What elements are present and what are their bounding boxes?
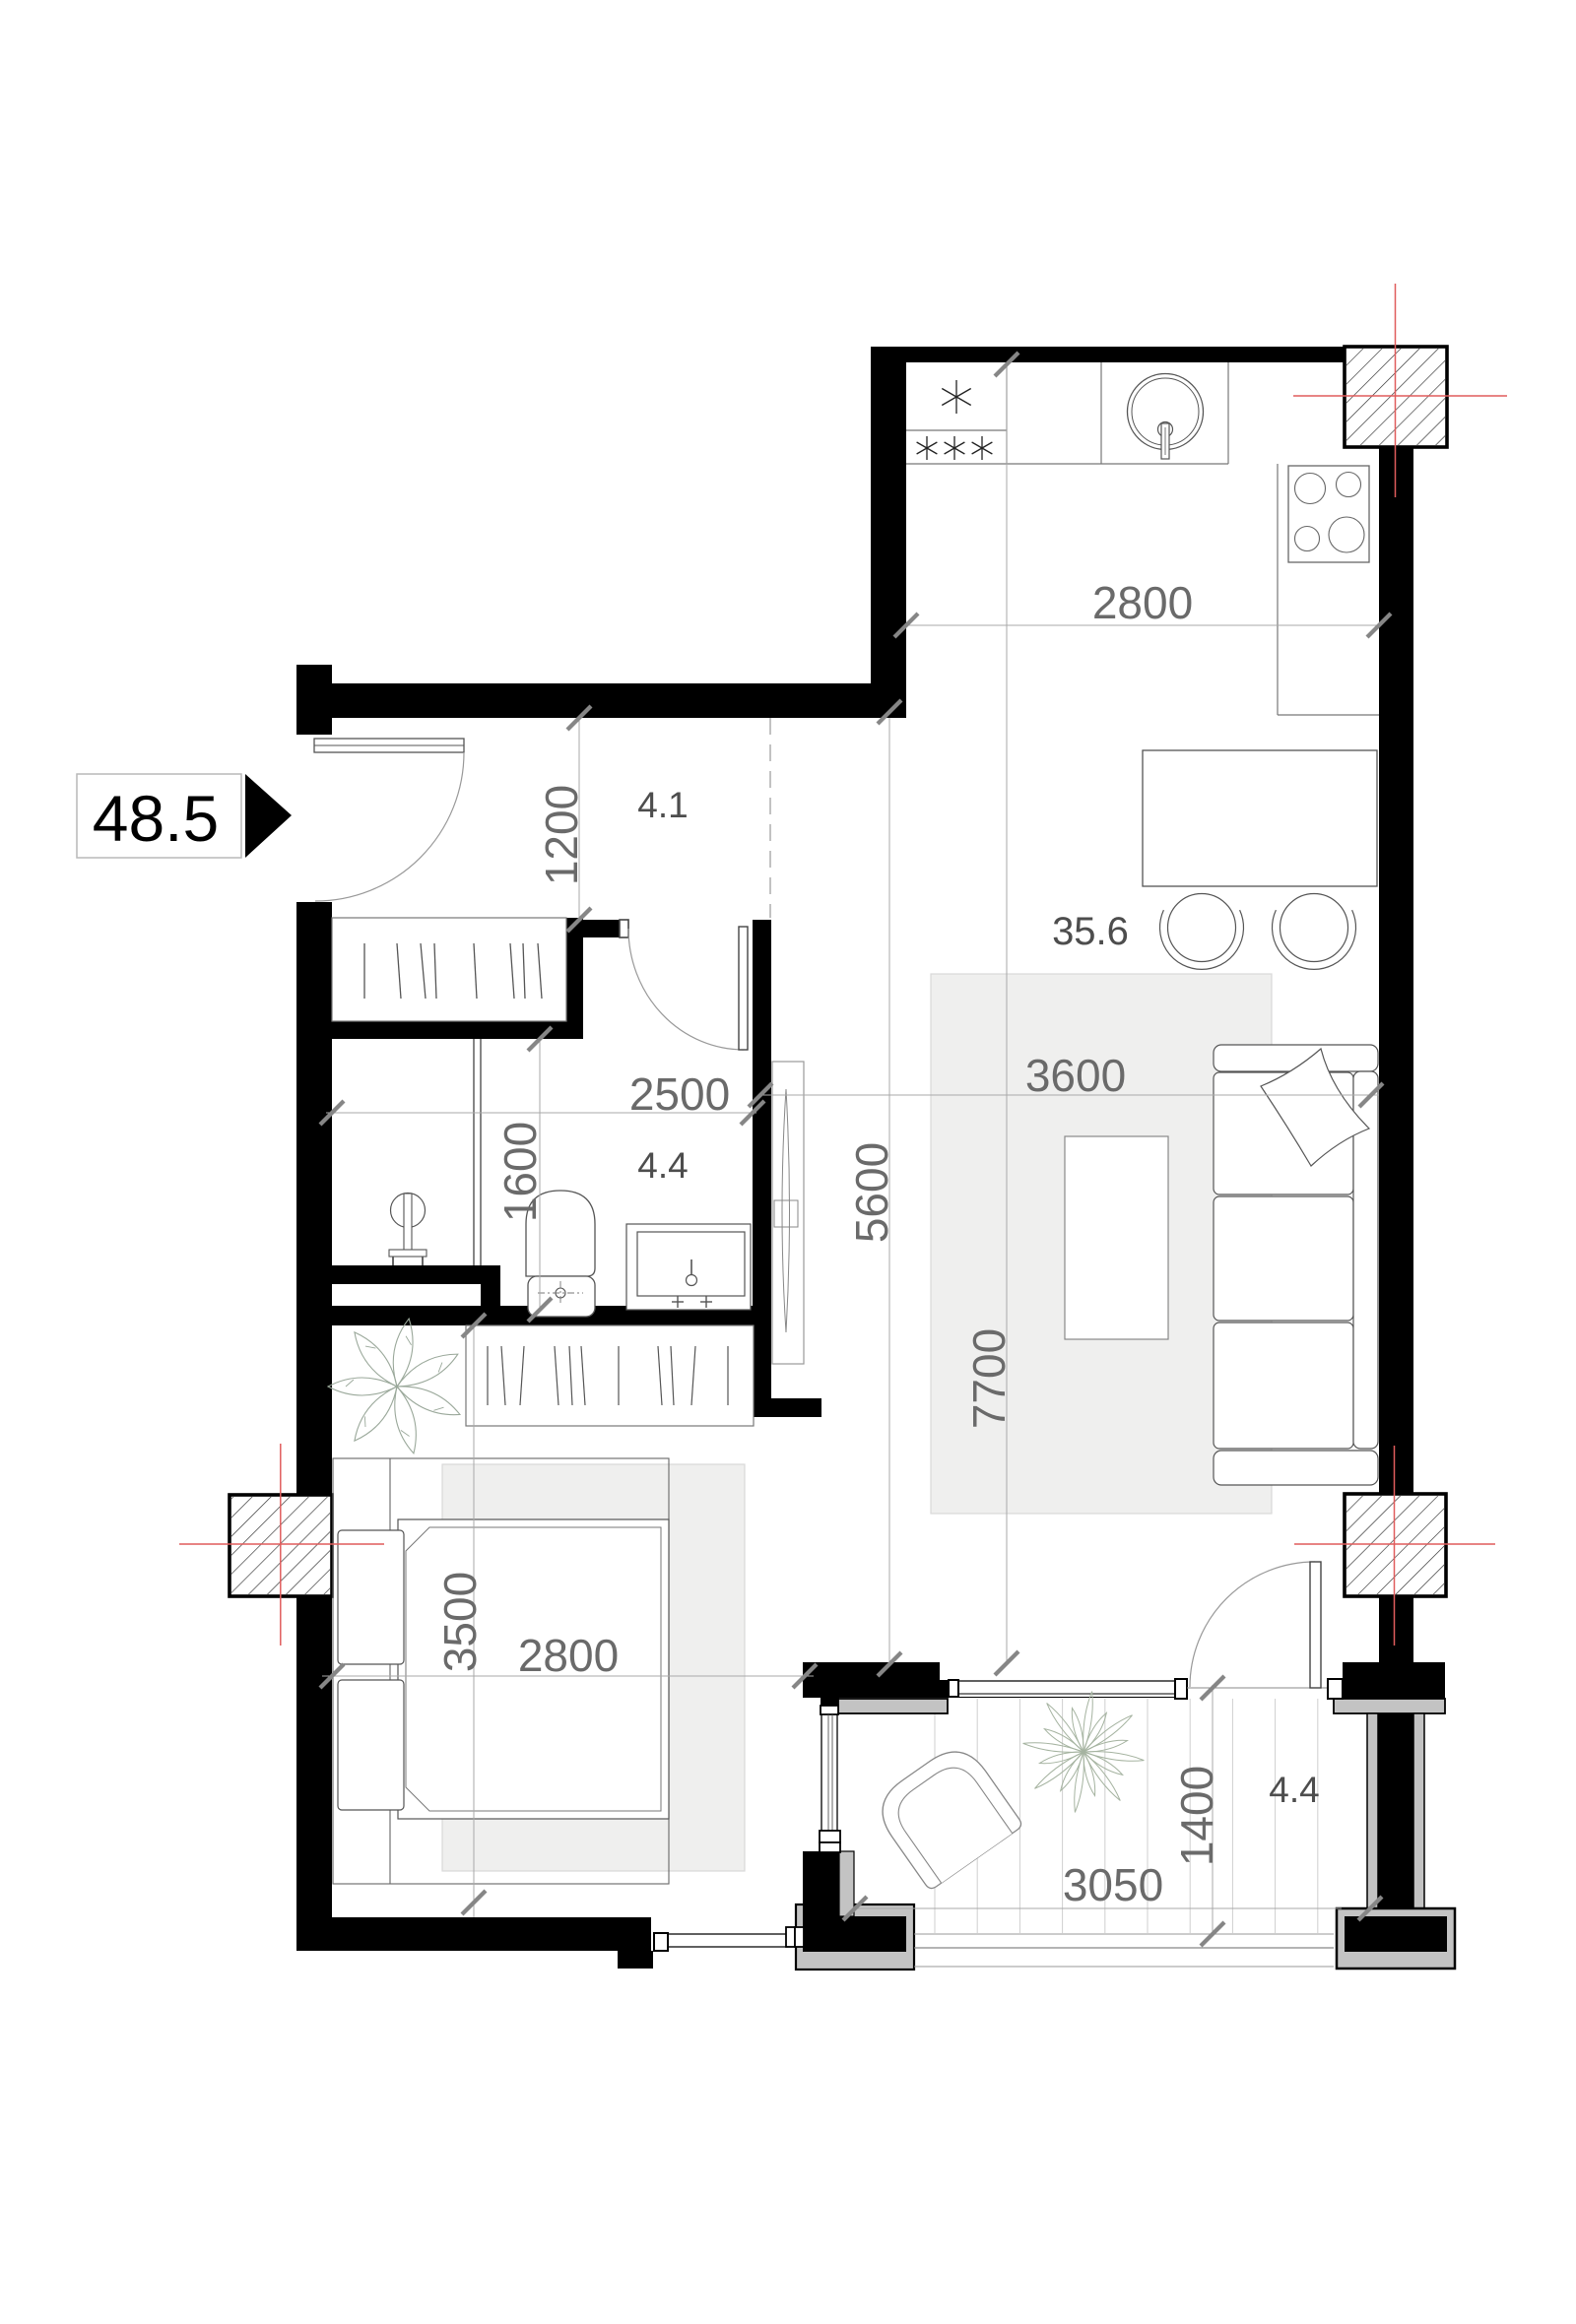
svg-text:35.6: 35.6	[1052, 910, 1129, 953]
svg-text:1400: 1400	[1171, 1766, 1222, 1866]
svg-text:5600: 5600	[846, 1142, 897, 1243]
svg-text:1600: 1600	[494, 1122, 546, 1222]
svg-text:3500: 3500	[434, 1572, 486, 1672]
svg-text:48.5: 48.5	[93, 782, 219, 855]
svg-text:2500: 2500	[629, 1068, 730, 1120]
svg-text:3050: 3050	[1063, 1859, 1163, 1910]
svg-text:3600: 3600	[1025, 1050, 1126, 1101]
svg-text:1200: 1200	[536, 785, 587, 885]
svg-text:4.4: 4.4	[637, 1145, 688, 1186]
svg-text:7700: 7700	[963, 1328, 1015, 1429]
svg-text:2800: 2800	[518, 1630, 619, 1681]
svg-text:4.4: 4.4	[1269, 1770, 1319, 1810]
svg-text:2800: 2800	[1092, 577, 1193, 628]
svg-text:4.1: 4.1	[637, 785, 688, 825]
